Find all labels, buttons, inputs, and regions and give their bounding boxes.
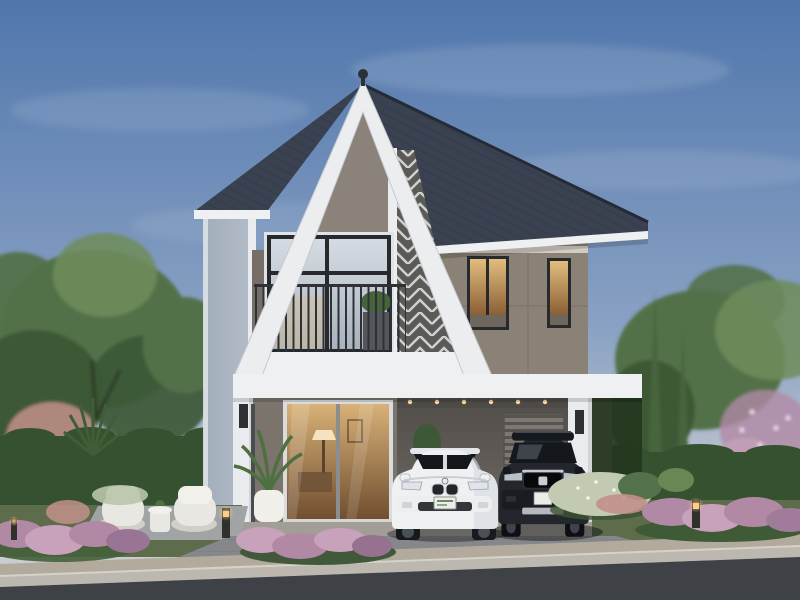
car-roof: [512, 432, 574, 441]
fog-light: [506, 496, 516, 502]
fog-light: [402, 502, 412, 508]
pink-flowers: [352, 535, 392, 557]
plate-marks: [437, 504, 447, 506]
sage-bush: [658, 468, 694, 492]
interior-sofa: [298, 472, 332, 492]
brand-logo: [538, 477, 547, 486]
fascia-shadow: [233, 398, 642, 402]
scene-canvas: [0, 0, 800, 600]
brand-roundel: [442, 478, 448, 484]
floor-fascia-band: [233, 374, 642, 398]
wall-sconce-right: [575, 410, 584, 434]
door-stile: [336, 404, 340, 522]
wall-sconce-left: [239, 404, 248, 428]
side-wall-gutter: [203, 218, 208, 518]
window-spandrel: [470, 315, 506, 327]
hedge-top: [666, 444, 734, 462]
headlight: [468, 482, 488, 490]
house-exterior-render: [0, 0, 800, 600]
sliding-glass-door: [283, 400, 393, 525]
salmon-bush: [46, 500, 90, 524]
window-mullion: [486, 259, 489, 315]
chair-cushion: [178, 486, 212, 504]
license-plate: [434, 497, 456, 509]
balcony-slab: [246, 352, 466, 374]
pink-flowers: [106, 529, 150, 553]
hedge-top: [124, 428, 176, 448]
kidney-grille: [446, 484, 458, 495]
window-glass: [550, 261, 568, 315]
plant-pot: [254, 490, 284, 522]
kidney-grille: [432, 484, 444, 495]
plate-marks: [437, 500, 453, 502]
window-spandrel: [550, 315, 568, 325]
bollard-glow: [9, 516, 19, 526]
right-window-1: [467, 256, 509, 330]
cloud: [10, 88, 310, 132]
interior-lamp-post: [322, 440, 325, 474]
headlight: [402, 482, 422, 490]
side-table-top: [148, 506, 172, 514]
windshield-divider: [443, 455, 447, 469]
salmon-bush: [596, 494, 648, 514]
tree-canopy: [53, 233, 157, 317]
side-mirror: [503, 467, 511, 475]
hedge-top: [4, 428, 56, 448]
right-window-2: [547, 258, 571, 328]
bollard-glow: [688, 497, 704, 513]
white-flower-bush: [92, 485, 148, 505]
fog-light: [478, 502, 488, 508]
interior-lamp-shade: [312, 430, 336, 440]
cloud: [350, 44, 730, 96]
bollard-glow: [218, 505, 234, 521]
gable-finial-post: [361, 77, 365, 86]
left-roof-fascia: [194, 210, 270, 219]
